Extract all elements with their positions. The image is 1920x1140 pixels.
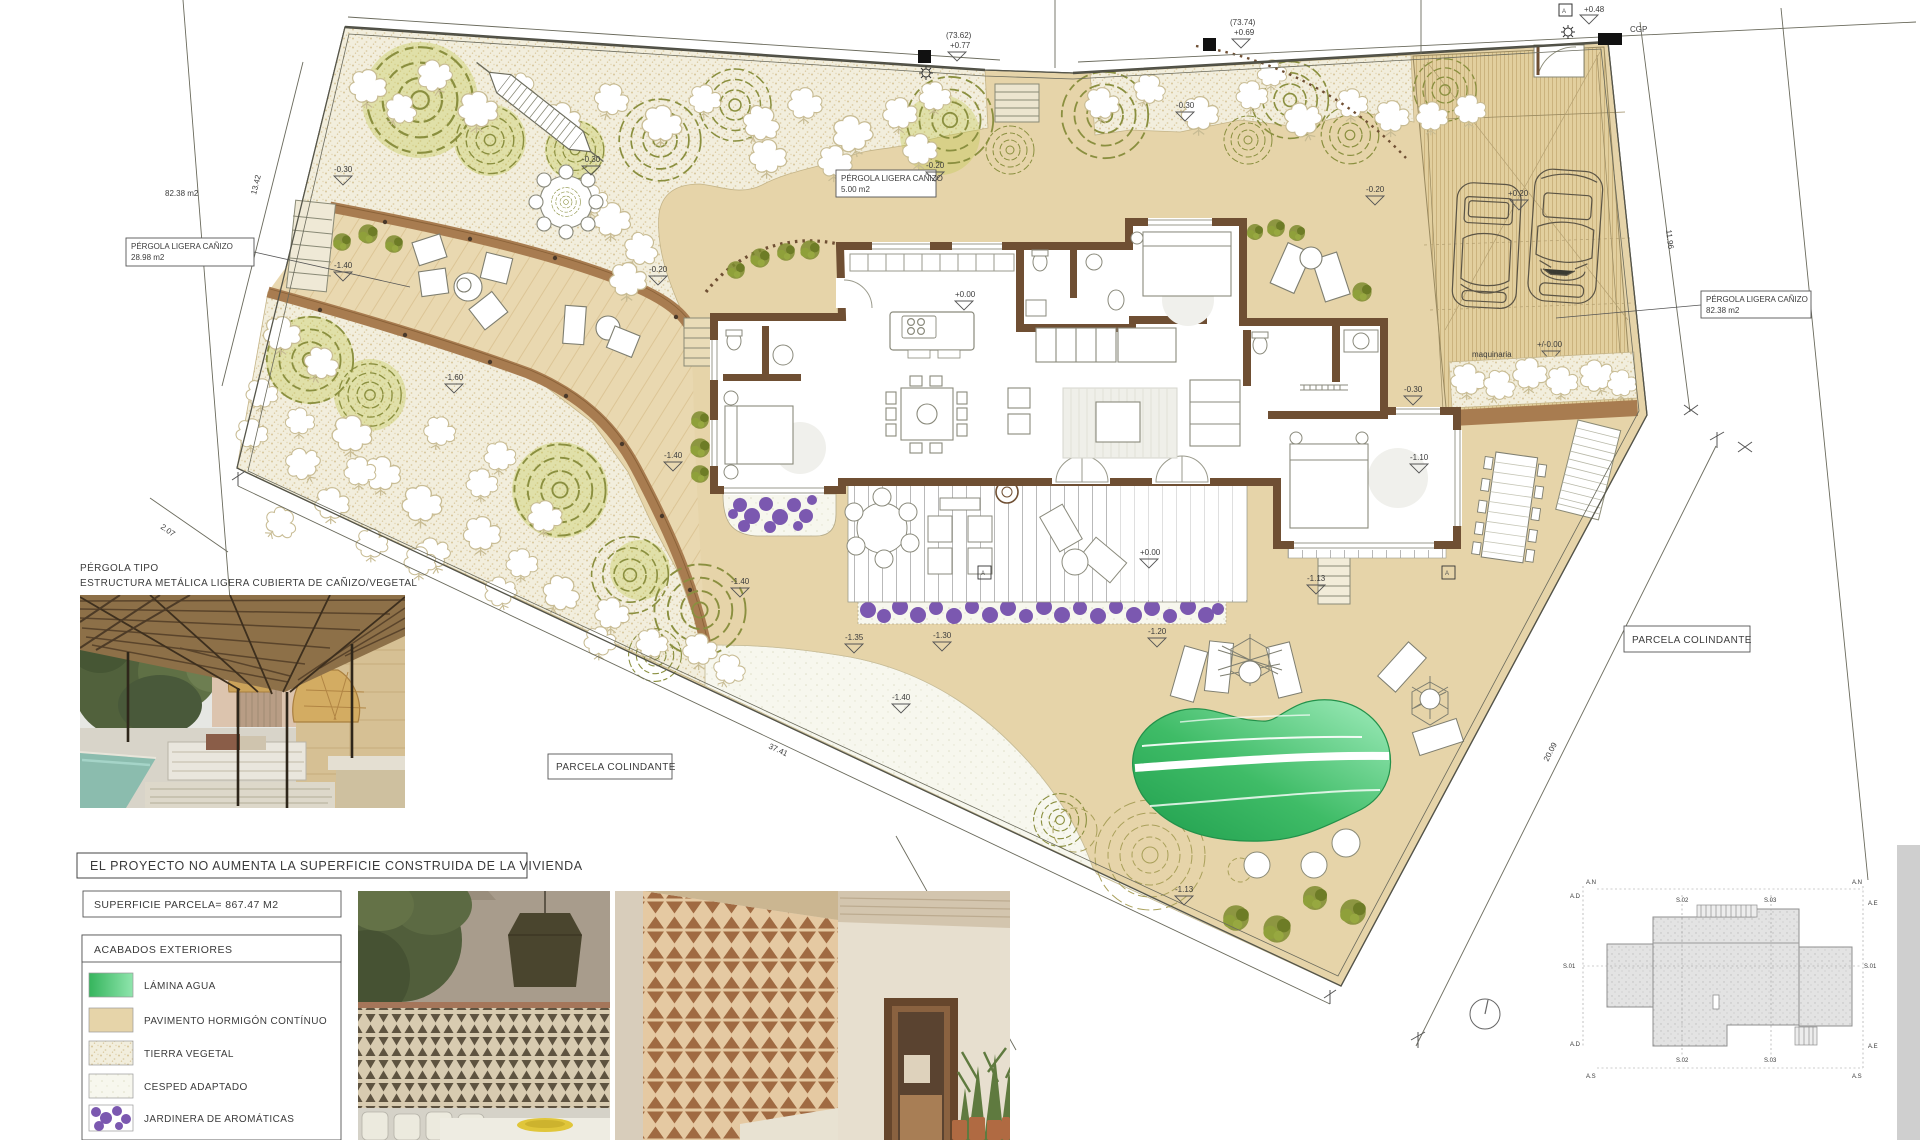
svg-text:82.38 m2: 82.38 m2 [1706,306,1740,315]
svg-text:A.D: A.D [1570,1042,1581,1048]
svg-text:+/-0.00: +/-0.00 [1537,340,1563,349]
svg-text:EL PROYECTO NO AUMENTA LA SUPE: EL PROYECTO NO AUMENTA LA SUPERFICIE CON… [90,859,583,873]
svg-text:S.01: S.01 [1864,964,1877,970]
svg-text:-1.40: -1.40 [731,577,750,586]
svg-text:(73.62): (73.62) [946,31,972,40]
svg-text:-0.20: -0.20 [926,161,945,170]
svg-text:A: A [981,571,985,577]
svg-text:+0.77: +0.77 [950,41,971,50]
svg-text:A.N: A.N [1852,880,1862,886]
svg-text:SUPERFICIE PARCELA= 867.47 M2: SUPERFICIE PARCELA= 867.47 M2 [94,899,278,911]
svg-text:-0.30: -0.30 [1176,101,1195,110]
svg-text:PARCELA COLINDANTE: PARCELA COLINDANTE [556,762,676,773]
svg-text:5.00 m2: 5.00 m2 [841,185,870,194]
svg-text:-0.30: -0.30 [582,155,601,164]
svg-text:A.E: A.E [1868,1044,1878,1050]
svg-text:+0.00: +0.00 [955,290,976,299]
svg-text:-0.20: -0.20 [649,265,668,274]
svg-text:-1.20: -1.20 [1148,627,1167,636]
svg-text:ESTRUCTURA METÁLICA LIGERA CUB: ESTRUCTURA METÁLICA LIGERA CUBIERTA DE C… [80,576,417,589]
svg-text:A.N: A.N [1586,880,1596,886]
svg-text:S.02: S.02 [1676,898,1689,904]
svg-text:A.S: A.S [1852,1074,1862,1080]
svg-text:A.S: A.S [1586,1074,1596,1080]
svg-text:PÉRGOLA LIGERA CAÑIZO: PÉRGOLA LIGERA CAÑIZO [841,174,943,183]
svg-text:TIERRA VEGETAL: TIERRA VEGETAL [144,1049,234,1060]
svg-text:PARCELA COLINDANTE: PARCELA COLINDANTE [1632,635,1752,646]
svg-text:JARDINERA DE AROMÁTICAS: JARDINERA DE AROMÁTICAS [144,1112,294,1125]
svg-text:-1.60: -1.60 [445,373,464,382]
svg-text:-1.40: -1.40 [664,451,683,460]
svg-text:S.03: S.03 [1764,898,1777,904]
svg-text:PÉRGOLA LIGERA CAÑIZO: PÉRGOLA LIGERA CAÑIZO [1706,295,1808,304]
svg-text:-1.40: -1.40 [334,261,353,270]
svg-text:-1.35: -1.35 [845,633,864,642]
svg-text:+0.20: +0.20 [1508,189,1529,198]
svg-text:+0.69: +0.69 [1234,28,1255,37]
svg-text:-1.13: -1.13 [1307,574,1326,583]
svg-text:A: A [1445,571,1449,577]
svg-text:+0.00: +0.00 [1140,548,1161,557]
svg-text:28.98 m2: 28.98 m2 [131,253,165,262]
svg-text:(73.74): (73.74) [1230,18,1256,27]
svg-text:S.01: S.01 [1563,964,1576,970]
svg-text:-0.30: -0.30 [334,165,353,174]
svg-text:maquinaria: maquinaria [1472,350,1512,359]
svg-text:-0.30: -0.30 [1404,385,1423,394]
svg-text:CGP: CGP [1630,25,1647,34]
svg-text:-1.30: -1.30 [933,631,952,640]
svg-text:S.03: S.03 [1764,1058,1777,1064]
svg-text:PAVIMENTO HORMIGÓN CONTÍNUO: PAVIMENTO HORMIGÓN CONTÍNUO [144,1014,327,1027]
svg-text:-0.20: -0.20 [1366,185,1385,194]
svg-text:-1.40: -1.40 [892,693,911,702]
svg-text:PÉRGOLA TIPO: PÉRGOLA TIPO [80,561,159,574]
svg-text:S.02: S.02 [1676,1058,1689,1064]
svg-text:CESPED ADAPTADO: CESPED ADAPTADO [144,1082,248,1093]
svg-text:LÁMINA AGUA: LÁMINA AGUA [144,979,216,992]
svg-text:82.38 m2: 82.38 m2 [165,189,199,198]
svg-text:-1.13: -1.13 [1175,885,1194,894]
svg-text:+0.48: +0.48 [1584,5,1605,14]
svg-text:A.D: A.D [1570,894,1581,900]
svg-text:ACABADOS EXTERIORES: ACABADOS EXTERIORES [94,944,232,956]
svg-text:-1.10: -1.10 [1410,453,1429,462]
svg-text:A: A [1562,9,1566,15]
svg-text:A.E: A.E [1868,901,1878,907]
svg-text:PÉRGOLA LIGERA CAÑIZO: PÉRGOLA LIGERA CAÑIZO [131,242,233,251]
